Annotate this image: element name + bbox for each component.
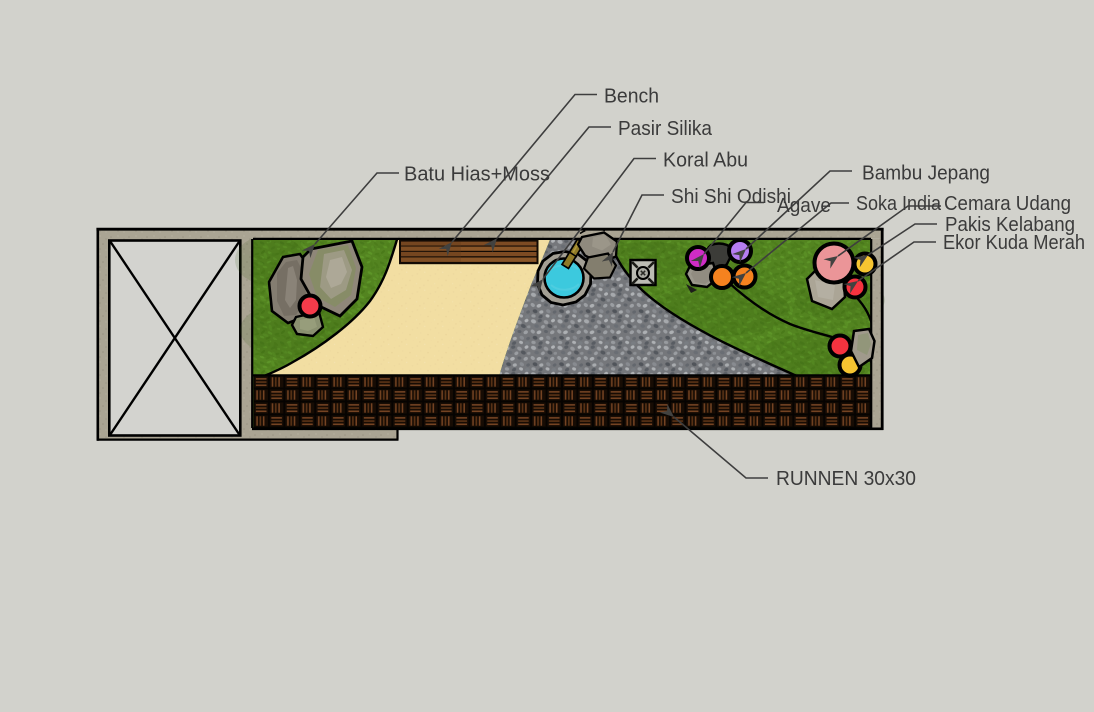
svg-text:Koral Abu: Koral Abu bbox=[663, 150, 748, 172]
svg-text:RUNNEN 30x30: RUNNEN 30x30 bbox=[776, 468, 916, 490]
svg-text:Shi Shi Odishi: Shi Shi Odishi bbox=[671, 186, 791, 208]
svg-text:Bench: Bench bbox=[604, 86, 659, 108]
svg-text:Batu Hias+Moss: Batu Hias+Moss bbox=[404, 164, 550, 186]
svg-text:Soka India: Soka India bbox=[856, 193, 942, 215]
svg-text:Ekor Kuda Merah: Ekor Kuda Merah bbox=[943, 232, 1085, 254]
svg-text:Cemara Udang: Cemara Udang bbox=[944, 193, 1071, 215]
svg-text:Pasir Silika: Pasir Silika bbox=[618, 118, 713, 140]
svg-text:Agave: Agave bbox=[777, 195, 831, 217]
svg-text:Bambu Jepang: Bambu Jepang bbox=[862, 163, 990, 185]
